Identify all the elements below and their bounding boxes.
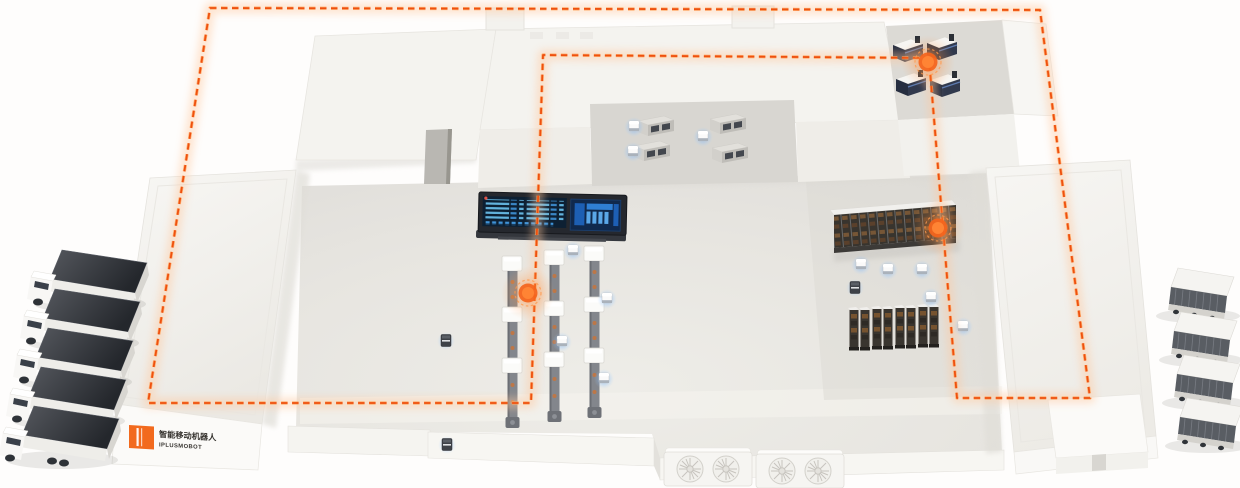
route-waypoint (501, 266, 555, 320)
screen-table-col (485, 199, 523, 220)
rack-tower (905, 305, 916, 349)
route-waypoint (901, 35, 955, 89)
agv (624, 117, 644, 137)
rack-tower (848, 307, 859, 351)
rack-tower (871, 306, 882, 350)
agv (623, 142, 643, 162)
roof-wall-right (796, 120, 910, 182)
rack-tower (928, 304, 939, 348)
agv (597, 289, 617, 309)
logo-mark-slit (141, 428, 142, 446)
annex-door (1092, 454, 1106, 471)
factory-scene: 智能移动机器人 IPLUSMOBOT (0, 0, 1240, 488)
roof-tab (556, 32, 569, 39)
roof-tab (580, 32, 593, 39)
rack-tower (917, 304, 928, 348)
dashboard-screen (476, 192, 627, 242)
agv (851, 255, 871, 275)
agv (693, 127, 713, 147)
roof-slab-a (296, 29, 496, 160)
agv (552, 332, 572, 352)
screen-bar (592, 212, 596, 224)
agv (921, 288, 941, 308)
service-robot (846, 279, 864, 297)
service-robot (437, 332, 455, 350)
agv (878, 260, 898, 280)
screen-bar (604, 212, 608, 224)
rack-tower (882, 306, 893, 350)
annex-roof (1048, 394, 1148, 458)
service-robot (438, 436, 456, 454)
logo-mark-slit (137, 428, 139, 446)
factory-illustration: 智能移动机器人 IPLUSMOBOT (0, 0, 1240, 488)
agv (563, 241, 583, 261)
screen-widget (574, 203, 584, 225)
mezzanine-floor (590, 100, 798, 186)
test-room-front (898, 114, 1020, 176)
hvac-unit (756, 450, 844, 488)
screen-bar (598, 212, 602, 224)
route-waypoint (911, 201, 965, 255)
front-wall (288, 426, 430, 456)
screen-widget (587, 203, 613, 210)
hvac-unit (664, 448, 752, 486)
rack-tower (894, 305, 905, 349)
screen-widget (613, 204, 618, 226)
screen-bar (586, 211, 590, 223)
agv (912, 260, 932, 280)
agv (594, 369, 614, 389)
roof-tab (530, 32, 543, 39)
rack-tower (859, 307, 870, 351)
